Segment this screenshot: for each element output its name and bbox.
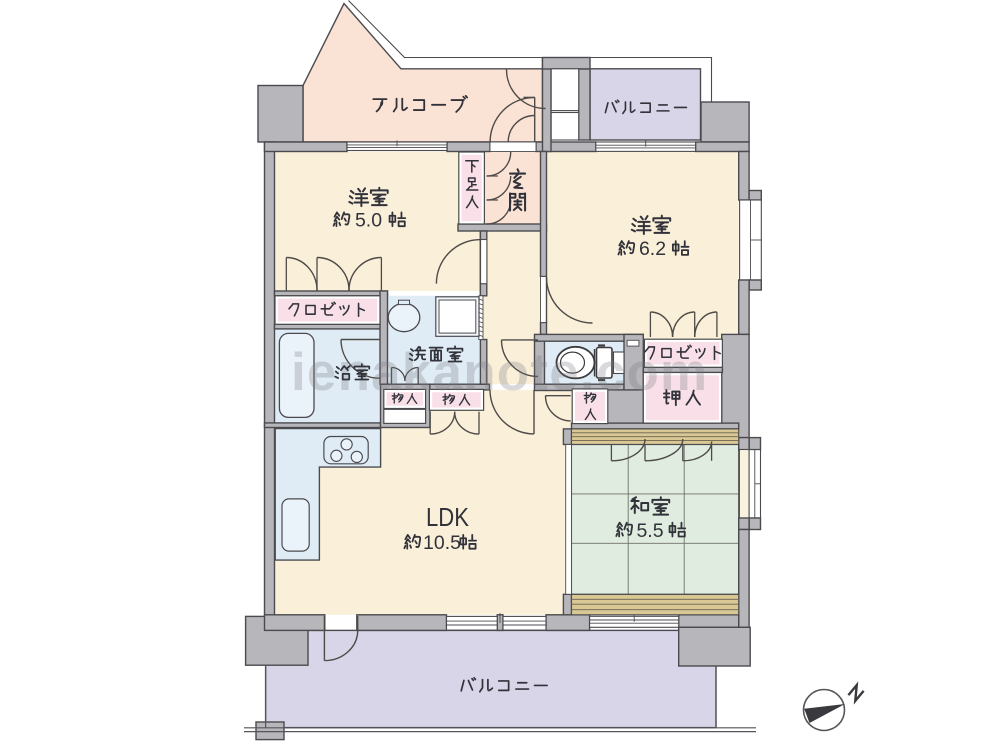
svg-text:6.2: 6.2 bbox=[639, 238, 666, 260]
svg-text:5.5: 5.5 bbox=[636, 520, 663, 542]
svg-text:10.5: 10.5 bbox=[423, 532, 461, 554]
svg-text:5.0: 5.0 bbox=[355, 210, 382, 232]
svg-text:LDK: LDK bbox=[426, 502, 470, 532]
